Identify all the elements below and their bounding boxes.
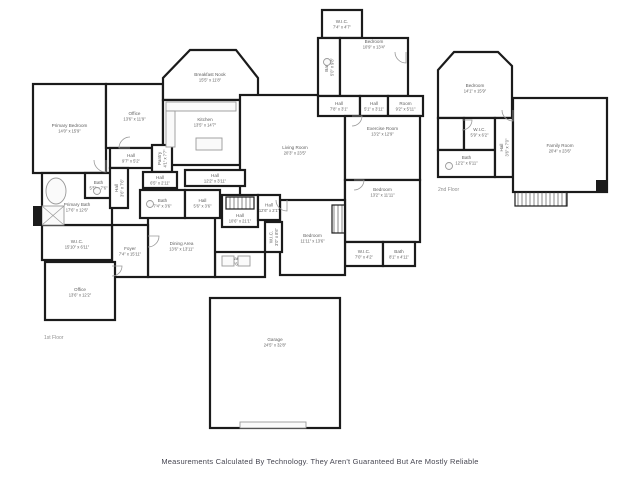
kitchen-counter-icon: [166, 111, 175, 147]
floorplan-page: Primary Bedroom14'0" x 15'9"Office13'6" …: [0, 0, 640, 480]
room-label: Family Room20'4" x 23'6": [546, 143, 573, 154]
toilet-icon: [147, 201, 154, 208]
stairs-icon: [515, 192, 567, 206]
room-wic-3: W.I.C.3'0" x 8'6": [265, 222, 282, 252]
room-office-2: Office13'6" x 12'2": [45, 262, 115, 320]
room-label: Bedroom14'1" x 15'9": [464, 83, 487, 94]
room-breakfast-nook: Breakfast Nook15'5" x 11'8": [163, 50, 258, 100]
room-wic-4: W.I.C.15'10" x 6'11": [42, 225, 112, 260]
bathtub-icon: [46, 178, 66, 204]
room-label: Bedroom11'11" x 13'6": [300, 233, 325, 244]
room-label: Living Room20'3" x 23'5": [282, 145, 308, 156]
room-hall-10: Hall3'6" x 7'0": [495, 118, 513, 177]
room-label: Primary Bath17'6" x 12'6": [64, 202, 91, 213]
room-hall-7: Hall6'5" x 2'11": [143, 172, 177, 188]
room-hall-2: Hall5'1" x 3'11": [360, 96, 388, 116]
garage-door-icon: [240, 422, 306, 428]
kitchen-counter-icon: [166, 102, 236, 111]
room-wic-2: W.I.C.7'0" x 4'2": [345, 242, 383, 266]
chimney-block: [596, 180, 607, 193]
room-pantry: Pantry4'1" x 7'7": [152, 145, 172, 172]
room-hall-1: Hall7'8" x 3'1": [318, 96, 360, 116]
room-wic-5: W.I.C.5'9" x 6'2": [464, 118, 495, 150]
room-exercise-room: Exercise Room13'2" x 12'9": [345, 116, 420, 180]
room-label: Bedroom10'9" x 13'4": [363, 39, 386, 50]
room-primary-bedroom: Primary Bedroom14'0" x 15'9": [33, 84, 106, 173]
room-wic-1: W.I.C.7'4" x 4'7": [322, 10, 362, 38]
room-garage: Garage24'5" x 32'8": [210, 298, 340, 428]
room-hall-9: Hall5'6" x 3'6": [185, 190, 220, 218]
dryer-icon: [238, 256, 250, 266]
toilet-icon: [324, 59, 331, 66]
room-bath-1: Bath5'0" x 9'8": [318, 38, 340, 96]
room-hall-8: Hall12'2" x 3'11": [185, 170, 245, 186]
room-hall-6: Hall3'6" x 7'6": [110, 168, 128, 208]
stairs-icon: [226, 197, 254, 209]
room-dining-area: Dining Area13'6" x 13'11": [148, 213, 215, 277]
room-bath-2: Bath8'1" x 4'11": [383, 242, 415, 266]
room-foyer: Foyer7'4" x 15'11": [112, 225, 148, 277]
chimney-block: [33, 206, 42, 226]
room-hall-4: Hall12'6" x 2'1": [258, 195, 280, 220]
room-room-1: Room9'2" x 5'11": [388, 96, 423, 116]
toilet-icon: [94, 188, 101, 195]
room-bedroom-4: Bedroom14'1" x 15'9": [438, 52, 512, 118]
stairs-icon: [332, 205, 345, 233]
room-hall-5: Hall9'7" x 5'2": [110, 148, 152, 168]
room-office-1: Office13'6" x 11'9": [106, 84, 163, 148]
room-label: Dining Area13'6" x 13'11": [169, 241, 194, 252]
room-bedroom-2: Bedroom13'2" x 11'11": [345, 180, 420, 242]
room-closet-2f: [438, 118, 464, 150]
room-family-room: Family Room20'4" x 23'6": [513, 98, 607, 192]
room-bedroom-1: Bedroom10'9" x 13'4": [340, 38, 408, 96]
washer-icon: [222, 256, 234, 266]
disclaimer-text: Measurements Calculated By Technology. T…: [0, 457, 640, 466]
floorplan-drawing: Primary Bedroom14'0" x 15'9"Office13'6" …: [0, 0, 640, 480]
floor-label: 1st Floor: [44, 335, 64, 341]
shower-icon: [42, 206, 64, 225]
room-label: Bedroom13'2" x 11'11": [370, 187, 395, 198]
toilet-icon: [446, 163, 453, 170]
kitchen-island-icon: [196, 138, 222, 150]
floor-label: 2nd Floor: [438, 187, 459, 193]
room-label: Exercise Room13'2" x 12'9": [367, 126, 398, 137]
